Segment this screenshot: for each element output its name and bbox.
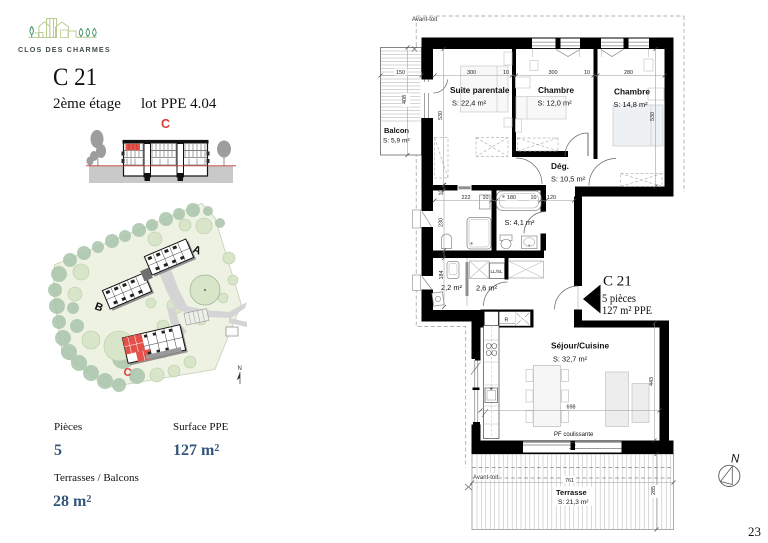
svg-text:230: 230 <box>438 218 444 227</box>
svg-text:530: 530 <box>438 111 444 120</box>
svg-text:45: 45 <box>439 252 445 258</box>
svg-text:C 21: C 21 <box>603 274 632 290</box>
svg-text:Avant-toit: Avant-toit <box>412 17 438 23</box>
svg-text:S: 12,0 m²: S: 12,0 m² <box>538 99 573 108</box>
svg-text:S: 21,3 m²: S: 21,3 m² <box>558 499 589 506</box>
svg-text:Séjour/Cuisine: Séjour/Cuisine <box>551 341 609 351</box>
svg-text:300: 300 <box>467 70 476 76</box>
svg-text:5 pièces: 5 pièces <box>602 291 636 305</box>
svg-text:Dég.: Dég. <box>551 161 569 171</box>
svg-text:2,6 m²: 2,6 m² <box>476 284 497 293</box>
svg-text:10: 10 <box>584 70 590 76</box>
svg-text:698: 698 <box>567 405 576 411</box>
svg-text:PF coulissante: PF coulissante <box>554 432 594 438</box>
svg-text:300: 300 <box>549 70 558 76</box>
svg-text:280: 280 <box>624 70 633 76</box>
svg-text:LL/SL: LL/SL <box>491 269 503 274</box>
svg-text:S: 10,5 m²: S: 10,5 m² <box>551 175 586 184</box>
svg-text:Suite parentale: Suite parentale <box>450 85 510 95</box>
svg-text:Chambre: Chambre <box>614 87 650 97</box>
svg-text:S: 22,4 m²: S: 22,4 m² <box>452 99 487 108</box>
svg-text:180: 180 <box>507 195 516 201</box>
svg-text:530: 530 <box>650 112 656 121</box>
svg-text:150: 150 <box>396 70 405 76</box>
svg-text:10: 10 <box>531 195 537 201</box>
svg-text:222: 222 <box>462 195 471 201</box>
svg-text:10: 10 <box>503 70 509 76</box>
svg-text:Terrasse: Terrasse <box>556 488 587 497</box>
svg-text:408: 408 <box>402 95 408 104</box>
svg-text:S: 5,9 m²: S: 5,9 m² <box>383 138 411 145</box>
svg-text:Chambre: Chambre <box>538 85 574 95</box>
svg-text:10: 10 <box>438 190 444 196</box>
svg-text:120: 120 <box>547 195 556 201</box>
svg-text:761: 761 <box>565 478 574 484</box>
svg-text:S: 14,8 m²: S: 14,8 m² <box>614 100 649 109</box>
svg-text:127 m² PPE: 127 m² PPE <box>602 305 652 317</box>
svg-text:184: 184 <box>439 271 445 280</box>
svg-text:443: 443 <box>649 377 655 386</box>
svg-text:10: 10 <box>483 195 489 201</box>
svg-text:Balcon: Balcon <box>384 126 409 135</box>
svg-text:S: 4,1 m²: S: 4,1 m² <box>505 218 536 227</box>
svg-text:285: 285 <box>651 486 657 495</box>
svg-text:R: R <box>505 318 509 324</box>
svg-text:S: 32,7 m²: S: 32,7 m² <box>553 355 588 364</box>
svg-text:Avant-toit: Avant-toit <box>473 475 499 481</box>
svg-text:N: N <box>731 454 740 466</box>
